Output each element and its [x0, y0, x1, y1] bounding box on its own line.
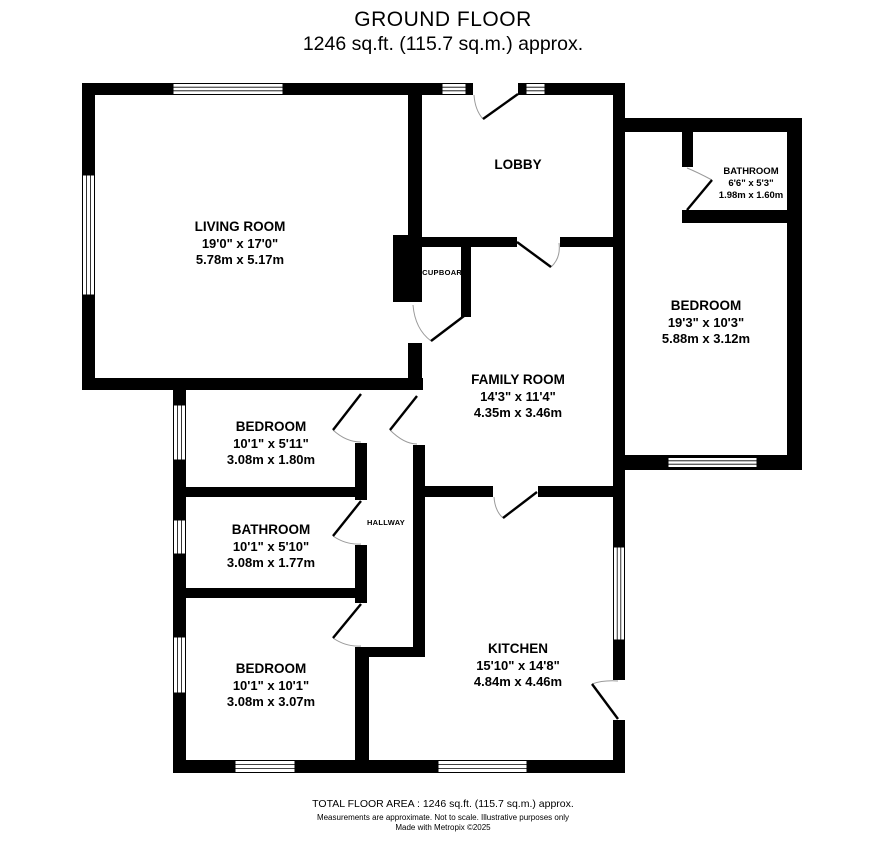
total-floor-area: TOTAL FLOOR AREA : 1246 sq.ft. (115.7 sq…: [0, 798, 886, 810]
window: [235, 761, 295, 773]
window: [614, 547, 625, 640]
window: [174, 637, 186, 693]
room-dims-m: 3.08m x 1.77m: [227, 555, 315, 570]
door-arc: [551, 243, 559, 267]
credit-text: Made with Metropix ©2025: [0, 823, 886, 832]
room-name: FAMILY ROOM: [471, 372, 565, 387]
window: [438, 761, 527, 773]
window: [83, 175, 95, 295]
wall-segment: [461, 247, 471, 317]
wall-segment: [355, 647, 425, 657]
ensuite-bathroom-door: [687, 168, 712, 210]
room-dims-m: 1.98m x 1.60m: [719, 190, 783, 201]
cupboard-block: [393, 235, 422, 302]
floorplan-page: GROUND FLOOR 1246 sq.ft. (115.7 sq.m.) a…: [0, 0, 886, 863]
window: [173, 84, 283, 95]
room-dims-m: 4.84m x 4.46m: [474, 674, 562, 689]
wall-segment: [682, 210, 802, 223]
window: [442, 84, 466, 95]
door-arc: [333, 536, 361, 544]
window: [526, 84, 545, 95]
door-arc: [413, 305, 431, 341]
disclaimer-text: Measurements are approximate. Not to sca…: [0, 813, 886, 822]
room-label-bedroom-front: BEDROOM 10'1" x 5'11" 3.08m x 1.80m: [227, 419, 315, 467]
room-label-bedroom-rear: BEDROOM 10'1" x 10'1" 3.08m x 3.07m: [227, 661, 315, 709]
room-name: LOBBY: [494, 157, 541, 172]
room-name: KITCHEN: [488, 641, 548, 656]
door-leaf: [483, 94, 518, 119]
room-dims-m: 3.08m x 1.80m: [227, 452, 315, 467]
wall-segment: [180, 487, 357, 497]
door-arc: [494, 497, 503, 518]
room-name: LIVING ROOM: [195, 219, 286, 234]
wall-segment: [413, 445, 425, 657]
door-leaf: [431, 316, 464, 341]
window: [174, 405, 186, 460]
wall-segment: [613, 118, 800, 132]
cupboard-door: [413, 305, 464, 341]
room-dims-ft: 10'1" x 5'11": [233, 436, 309, 451]
room-name: BEDROOM: [236, 419, 307, 434]
room-name: BEDROOM: [671, 298, 742, 313]
room-dims-ft: 14'3" x 11'4": [480, 389, 556, 404]
wall-segment: [538, 486, 613, 497]
bedroom-front-door: [333, 394, 361, 442]
room-dims-ft: 6'6" x 5'3": [728, 178, 773, 189]
room-label-bedroom-right: BEDROOM 19'3" x 10'3" 5.88m x 3.12m: [662, 298, 750, 346]
door-leaf: [687, 180, 712, 210]
room-label-ensuite-bathroom: BATHROOM 6'6" x 5'3" 1.98m x 1.60m: [719, 166, 783, 201]
bathroom-main-door: [333, 501, 361, 544]
room-name: BATHROOM: [723, 166, 778, 177]
room-name: BATHROOM: [232, 522, 311, 537]
wall-segment: [355, 545, 367, 603]
kitchen-door: [494, 492, 537, 518]
room-label-bathroom-main: BATHROOM 10'1" x 5'10" 3.08m x 1.77m: [227, 522, 315, 570]
door-leaf: [503, 492, 537, 518]
room-name: BEDROOM: [236, 661, 307, 676]
window: [668, 458, 757, 468]
door-leaf: [517, 242, 551, 267]
door-arc: [390, 430, 417, 444]
room-dims-m: 4.35m x 3.46m: [474, 405, 562, 420]
room-dims-m: 5.88m x 3.12m: [662, 331, 750, 346]
kitchen-exterior-door: [592, 681, 618, 719]
room-dims-ft: 19'0" x 17'0": [202, 236, 278, 251]
door-leaf: [333, 604, 361, 638]
room-dims-m: 3.08m x 3.07m: [227, 694, 315, 709]
wall-segment: [180, 588, 357, 598]
room-label-kitchen: KITCHEN 15'10" x 14'8" 4.84m x 4.46m: [474, 641, 562, 689]
room-dims-ft: 19'3" x 10'3": [668, 315, 744, 330]
floorplan-drawing: LIVING ROOM 19'0" x 17'0" 5.78m x 5.17m …: [0, 0, 886, 863]
wall-segment: [422, 237, 517, 247]
door-arc: [474, 95, 483, 119]
room-label-lobby: LOBBY: [494, 157, 541, 172]
door-leaf: [333, 501, 361, 536]
door-leaf: [333, 394, 361, 430]
room-label-family-room: FAMILY ROOM 14'3" x 11'4" 4.35m x 3.46m: [471, 372, 565, 420]
wall-segment: [787, 118, 802, 470]
wall-segment: [355, 443, 367, 500]
door-arc: [687, 168, 712, 180]
wall-segment: [613, 83, 625, 470]
footer-block: TOTAL FLOOR AREA : 1246 sq.ft. (115.7 sq…: [0, 798, 886, 832]
bedroom-rear-door: [333, 604, 361, 646]
front-door: [474, 94, 518, 119]
wall-segment: [613, 720, 625, 773]
door-leaf: [592, 684, 618, 719]
wall-segment: [355, 647, 369, 763]
door-arc: [333, 638, 361, 646]
room-dims-ft: 10'1" x 5'10": [233, 539, 309, 554]
wall-segment: [82, 378, 423, 390]
cupboard-label: CUPBOARD: [422, 268, 468, 277]
walls-layer: [82, 83, 802, 773]
door-arc: [333, 430, 361, 442]
wall-segment: [423, 486, 493, 497]
door-arc: [592, 681, 618, 684]
hallway-label: HALLWAY: [367, 518, 405, 527]
hallway-door: [390, 396, 417, 444]
wall-segment: [682, 132, 693, 167]
lobby-family-door: [517, 242, 559, 267]
room-dims-ft: 10'1" x 10'1": [233, 678, 309, 693]
wall-segment: [408, 343, 422, 390]
room-dims-m: 5.78m x 5.17m: [196, 252, 284, 267]
room-label-living-room: LIVING ROOM 19'0" x 17'0" 5.78m x 5.17m: [195, 219, 286, 267]
wall-segment: [560, 237, 613, 247]
door-leaf: [390, 396, 417, 430]
window: [174, 520, 186, 554]
room-dims-ft: 15'10" x 14'8": [476, 658, 560, 673]
